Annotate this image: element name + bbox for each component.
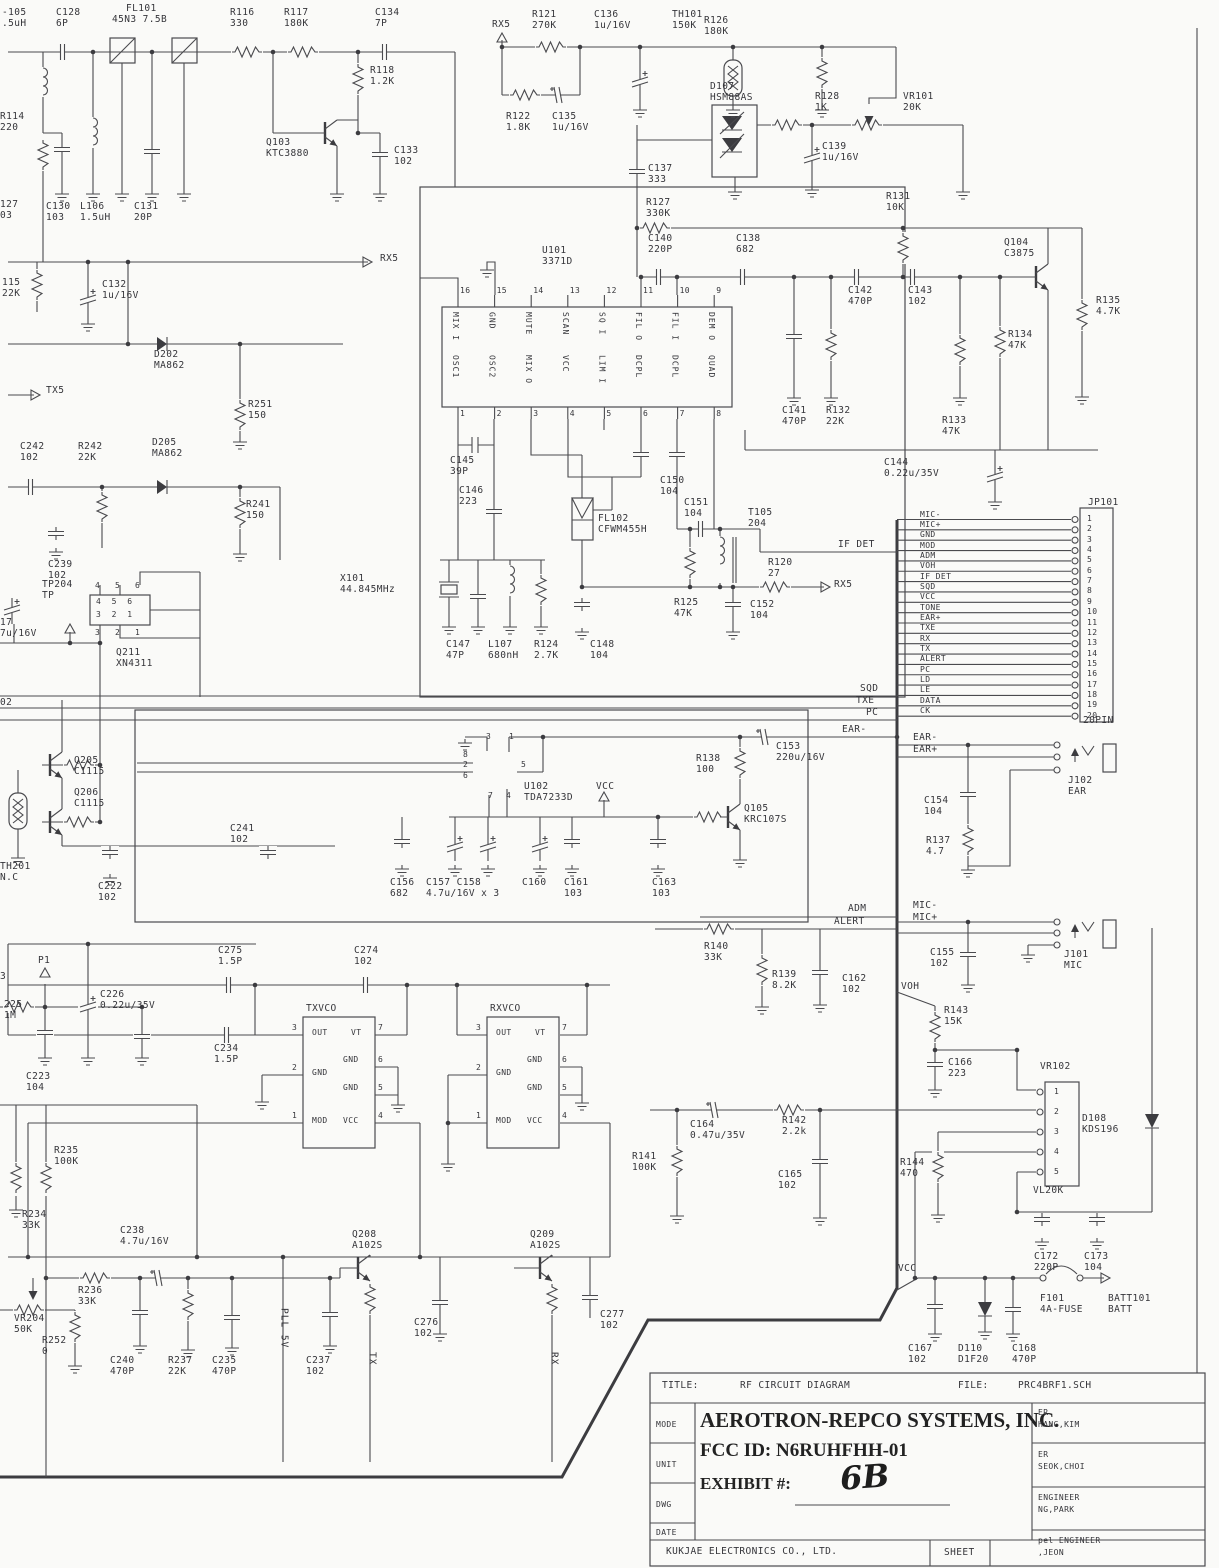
rxvco-pin-number: 3 [476,1023,481,1032]
115-label: 115 22K [2,278,20,299]
u101-pin-number: 3 [533,409,538,418]
alert-label: ALERT [834,917,865,928]
pc-label: PC [866,708,878,719]
u101-pin-mute: MUTE [524,312,533,335]
c154-label: C154 104 [924,796,948,817]
3-label: 3 [95,628,100,637]
exhibit-number: 6B [839,1456,891,1497]
02-label: 02 [0,698,12,709]
txvco-pin-number: 6 [378,1055,383,1064]
c276-label: C276 102 [414,1318,438,1339]
jp101-pin-number: 3 [1087,535,1092,544]
jp101-signal-ck: CK [920,706,930,715]
title-label: TITLE: [662,1381,699,1392]
txvco-pin-number: 2 [292,1063,297,1072]
r241-label: R241 150 [246,500,270,521]
c150-label: C150 104 [660,476,684,497]
c145-label: C145 39P [450,456,474,477]
c156-label: C156 682 [390,878,414,899]
rxvco-pin-number: 2 [476,1063,481,1072]
vr102-pin-number: 5 [1054,1167,1059,1176]
signoff-role-4: pel ENGINEER [1038,1536,1101,1545]
c128-label: C128 6P [56,8,80,29]
c162-label: C162 102 [842,974,866,995]
c142-label: C142 470P [848,286,872,307]
connector-pin-circle [1072,589,1078,595]
q103-label: Q103 KTC3880 [266,138,309,159]
r141-label: R141 100K [632,1152,656,1173]
title-block-frame [650,1373,1205,1566]
c167-label: C167 102 [908,1344,932,1365]
rxvco-pin-vcc: VCC [527,1116,543,1125]
c161-label: C161 103 [564,878,588,899]
r143-label: R143 15K [944,1006,968,1027]
connector-pin-circle [1072,672,1078,678]
u101-pin-number: 13 [570,286,580,295]
if-det-label: IF DET [838,540,875,551]
u101-pin-quad: QUAD [707,355,716,378]
txvco-pin-mod: MOD [312,1116,328,1125]
jp101-ref: JP101 [1088,498,1119,509]
u101-pin-osc1: OSC1 [451,355,460,378]
u101-pin-number: 11 [643,286,653,295]
connector-pin-circle [1072,651,1078,657]
u101-pin-fil-o: FIL O [634,312,643,341]
u101-pin-number: 16 [460,286,470,295]
u101-pin-sq-i: SQ I [597,312,606,335]
connector-pin-circle [1072,713,1078,719]
c166-label: C166 223 [948,1058,972,1079]
u101-pin-dcpl: DCPL [671,355,680,378]
u101-pin-number: 12 [606,286,616,295]
u101-pin-number: 9 [716,286,721,295]
c274-label: C274 102 [354,946,378,967]
c234-label: C234 1.5P [214,1044,238,1065]
jp101-signal-voh: VOH [920,561,936,570]
th101-label: TH101 150K [672,10,703,31]
jp101-signal-txe: TXE [920,623,936,632]
ear+-label: EAR+ [913,745,937,756]
c173-label: C173 104 [1084,1252,1108,1273]
r116-label: R116 330 [230,8,254,29]
fl102-label: FL102 CFWM455H [598,514,647,535]
jp101-signal-adm: ADM [920,551,936,560]
sqd-label: SQD [860,684,878,695]
c144-label: C144 0.22u/35V [884,458,939,479]
jp101-signal-mod: MOD [920,541,936,550]
r117-label: R117 180K [284,8,308,29]
connector-pin-circle [1037,1169,1043,1175]
rxvco-pin-mod: MOD [496,1116,512,1125]
rxvco-pin-number: 5 [562,1083,567,1092]
txvco-pin-gnd: GND [343,1083,359,1092]
c275-label: C275 1.5P [218,946,242,967]
txvco-pin-vcc: VCC [343,1116,359,1125]
c160-label: C160 [522,878,546,889]
vr102-pin-number: 3 [1054,1127,1059,1136]
c164-label: C164 0.47u/35V [690,1120,745,1141]
u101-pin-number: 5 [606,409,611,418]
voh-label: VOH [901,982,919,993]
d205-label: D205 MA862 [152,438,183,459]
jp101-pin-number: 19 [1087,700,1097,709]
d202-label: D202 MA862 [154,350,185,371]
u101-label: U101 3371D [542,246,573,267]
jp101-pin-number: 15 [1087,659,1097,668]
rx5-label: RX5 [834,580,852,591]
adm-label: ADM [848,904,866,915]
17-label: 17 7u/16V [0,618,37,639]
jp101-signal-tx: TX [920,644,930,653]
txvco-pin-out: OUT [312,1028,328,1037]
c143-label: C143 102 [908,286,932,307]
txvco-pin-number: 3 [292,1023,297,1032]
footer-company: KUKJAE ELECTRONICS CO., LTD. [666,1547,837,1558]
rxvco-pin-number: 4 [562,1111,567,1120]
connector-pin-circle [1072,579,1078,585]
r120-label: R120 27 [768,558,792,579]
l106-label: L106 1.5uH [80,202,111,223]
j102-label: J102 EAR [1068,776,1092,797]
connector-pin-circle [1072,527,1078,533]
7-label: 7 [488,791,493,800]
jp101-pin-number: 2 [1087,524,1092,533]
jp101-pin-number: 14 [1087,649,1097,658]
jp101-pin-number: 17 [1087,680,1097,689]
rx5-label: RX5 [380,254,398,265]
company-name: AEROTRON-REPCO SYSTEMS, INC. [700,1408,1059,1433]
sheet-label: SHEET [944,1548,975,1559]
vr102-pin-number: 1 [1054,1087,1059,1096]
r252-label: R252 0 [42,1336,66,1357]
jp101-signal-ld: LD [920,675,930,684]
signoff-name-1: HANG,KIM [1038,1420,1080,1429]
c172-label: C172 220P [1034,1252,1058,1273]
c134-label: C134 7P [375,8,399,29]
r118-label: R118 1.2K [370,66,394,87]
r139-label: R139 8.2K [772,970,796,991]
jp101-pin-number: 9 [1087,597,1092,606]
c223-label: C223 104 [26,1072,50,1093]
4-5-6-label: 4 5 6 [96,597,133,606]
jp101-pin-number: 12 [1087,628,1097,637]
c146-label: C146 223 [459,486,483,507]
u101-pin-number: 4 [570,409,575,418]
drawing-title: RF CIRCUIT DIAGRAM [740,1381,850,1392]
u101-pin-mix-i: MIX I [451,312,460,341]
vr102-pin-number: 4 [1054,1147,1059,1156]
connector-pin-circle [1037,1149,1043,1155]
c168-label: C168 470P [1012,1344,1036,1365]
row-label-dwg: DWG [656,1500,672,1509]
vr101-label: VR101 20K [903,92,934,113]
c139-label: C139 1u/16V [822,142,859,163]
t105-label: T105 204 [748,508,772,529]
j101-label: J101 MIC [1064,950,1088,971]
r133-label: R133 47K [942,416,966,437]
tp204-label: TP204 TP [42,580,73,601]
r235-label: R235 100K [54,1146,78,1167]
r138-label: R138 100 [696,754,720,775]
45n3-7-5b-label: 45N3 7.5B [112,15,167,26]
row-label-date: DATE [656,1528,677,1537]
c242-label: C242 102 [20,442,44,463]
u101-pin-number: 6 [643,409,648,418]
3-2-1-label: 3 2 1 [96,610,133,619]
r242-label: R242 22K [78,442,102,463]
rx-label: RX [548,1352,559,1365]
105-label: -105 .5uH [2,8,26,29]
r121-label: R121 270K [532,10,556,31]
u102-label: U102 TDA7233D [524,782,573,803]
r125-label: R125 47K [674,598,698,619]
u101-pin-number: 10 [680,286,690,295]
5-label: 5 [115,581,120,590]
u101-pin-gnd: GND [488,312,497,329]
c165-label: C165 102 [778,1170,802,1191]
r234-label: R234 33K [22,1210,46,1231]
c141-label: C141 470P [782,406,806,427]
txe-label: TXE [856,696,874,707]
jp101-signal-mic: MIC- [920,510,941,519]
c239-label: C239 102 [48,560,72,581]
c140-label: C140 220P [648,234,672,255]
vr102-pin-number: 2 [1054,1107,1059,1116]
r134-label: R134 47K [1008,330,1032,351]
connector-pin-circle [1072,558,1078,564]
jp101-signal-data: DATA [920,696,941,705]
txvco-pin-number: 1 [292,1111,297,1120]
r144-label: R144 470 [900,1158,924,1179]
jp101-pin-number: 10 [1087,607,1097,616]
signoff-role-1: ER [1038,1408,1048,1417]
u101-pin-dem-o: DEM O [707,312,716,341]
file-label: FILE: [958,1381,989,1392]
c152-label: C152 104 [750,600,774,621]
connector-pin-circle [1072,682,1078,688]
c235-label: C235 470P [212,1356,236,1377]
jp101-pin-number: 16 [1087,669,1097,678]
c155-label: C155 102 [930,948,954,969]
u101-pin-number: 14 [533,286,543,295]
connector-pin-circle [1037,1089,1043,1095]
jp101-pin-number: 6 [1087,566,1092,575]
signoff-role-2: ER [1038,1450,1048,1459]
f101-label: F101 4A-FUSE [1040,1294,1083,1315]
c130-label: C130 103 [46,202,70,223]
connector-pin-circle [1072,630,1078,636]
pll-5v-label: PLL 5V [278,1308,289,1348]
c238-label: C238 4.7u/16V [120,1226,169,1247]
jp101-signal-if-det: IF DET [920,572,951,581]
c240-label: C240 470P [110,1356,134,1377]
c135-label: C135 1u/16V [552,112,589,133]
vcc-label: VCC [596,782,614,793]
connector-pin-circle [1072,703,1078,709]
r251-label: R251 150 [248,400,272,421]
jp101-pin-number: 13 [1087,638,1097,647]
r137-label: R137 4.7 [926,836,950,857]
x101-label: X101 44.845MHz [340,574,395,595]
file-name: PRC4BRF1.SCH [1018,1381,1091,1392]
p1-label: P1 [38,956,50,967]
u101-pin-number: 8 [716,409,721,418]
rx5-label: RX5 [492,20,510,31]
jp101-signal-vcc: VCC [920,592,936,601]
signoff-name-3: NG,PARK [1038,1505,1075,1514]
r131-label: R131 10K [886,192,910,213]
ear-label: EAR- [913,733,937,744]
rxvco-pin-gnd: GND [496,1068,512,1077]
jp101-signal-pc: PC [920,665,930,674]
connector-pin-circle [1072,610,1078,616]
vr204-label: VR204 50K [14,1314,45,1335]
jp101-signal-gnd: GND [920,530,936,539]
jp101-signal-rx: RX [920,634,930,643]
3-label: 3 [486,732,491,741]
1-label: 1 [509,732,514,741]
row-label-mode: MODE [656,1420,677,1429]
r236-label: R236 33K [78,1286,102,1307]
txvco-pin-number: 5 [378,1083,383,1092]
u101-pin-mix-o: MIX O [524,355,533,384]
r142-label: R142 2.2k [782,1116,806,1137]
jp101-pin-number: 20 [1087,711,1097,720]
c131-label: C131 20P [134,202,158,223]
r127-label: R127 330K [646,198,670,219]
u101-pin-osc2: OSC2 [488,355,497,378]
6-label: 6 [463,771,468,780]
q211-label: Q211 XN4311 [116,648,153,669]
vl20k-label: VL20K [1033,1186,1064,1197]
rxvco-pin-gnd: GND [527,1055,543,1064]
connector-pin-circle [1072,599,1078,605]
2-label: 2 [463,760,468,769]
c237-label: C237 102 [306,1356,330,1377]
connector-pin-circle [1072,692,1078,698]
jp101-pin-number: 5 [1087,555,1092,564]
225-label: 225 1M [4,1000,22,1021]
q105-label: Q105 KRC107S [744,804,787,825]
8-label: 8 [463,750,468,759]
1-label: 1 [135,628,140,637]
6-label: 6 [135,581,140,590]
u101-pin-number: 2 [497,409,502,418]
txvco-label: TXVCO [306,1004,337,1015]
c163-label: C163 103 [652,878,676,899]
jp101-signal-mic+: MIC+ [920,520,941,529]
u101-pin-number: 7 [680,409,685,418]
jp101-pin-number: 7 [1087,576,1092,585]
u101-pin-number: 1 [460,409,465,418]
signoff-role-3: ENGINEER [1038,1493,1080,1502]
u101-pin-dcpl: DCPL [634,355,643,378]
vcc-label: VCC [898,1264,916,1275]
rxvco-label: RXVCO [490,1004,521,1015]
rxvco-pin-number: 1 [476,1111,481,1120]
connector-pin-circle [1072,537,1078,543]
u101-pin-scan: SCAN [561,312,570,335]
rxvco-pin-out: OUT [496,1028,512,1037]
r128-label: R128 1K [815,92,839,113]
tx-label: TX [366,1352,377,1365]
u101-pin-fil-i: FIL I [671,312,680,341]
c138-label: C138 682 [736,234,760,255]
txvco-pin-number: 7 [378,1023,383,1032]
r135-label: R135 4.7K [1096,296,1120,317]
q206-label: Q206 C1115 [74,788,105,809]
row-label-unit: UNIT [656,1460,677,1469]
r114-label: R114 220 [0,112,24,133]
127-label: 127 03 [0,200,18,221]
4-label: 4 [506,791,511,800]
txvco-pin-gnd: GND [343,1055,359,1064]
5-label: 5 [521,760,526,769]
txvco-pin-number: 4 [378,1111,383,1120]
fl101-label: FL101 [126,4,157,15]
u101-pin-number: 15 [497,286,507,295]
tx5-label: TX5 [46,386,64,397]
connector-pin-circle [1037,1129,1043,1135]
vr102-label: VR102 [1040,1062,1071,1073]
connector-pin-circle [1037,1109,1043,1115]
connector-pin-circle [1072,620,1078,626]
ear-label: EAR- [842,725,866,736]
jp101-pin-number: 11 [1087,618,1097,627]
q208-label: Q208 A102S [352,1230,383,1251]
mic+-label: MIC+ [913,913,937,924]
d107-label: D107 HSM88AS [710,82,753,103]
d110-label: D110 D1F20 [958,1344,989,1365]
rxvco-pin-gnd: GND [527,1083,543,1092]
r126-label: R126 180K [704,16,728,37]
u101-pin-vcc: VCC [561,355,570,372]
c226-label: C226 0.22u/35V [100,990,155,1011]
d108-label: D108 KDS196 [1082,1114,1119,1135]
signoff-name-4: ,JEON [1038,1548,1064,1557]
c157-c158-label: C157 C158 4.7u/16V x 3 [426,878,499,899]
jp101-pin-number: 8 [1087,586,1092,595]
jp101-pin-number: 18 [1087,690,1097,699]
batt101-label: BATT101 BATT [1108,1294,1151,1315]
jp101-signal-alert: ALERT [920,654,946,663]
rxvco-pin-number: 6 [562,1055,567,1064]
connector-pin-circle [1072,641,1078,647]
c241-label: C241 102 [230,824,254,845]
jp101-signal-tone: TONE [920,603,941,612]
q209-label: Q209 A102S [530,1230,561,1251]
2-label: 2 [115,628,120,637]
rxvco-pin-vt: VT [535,1028,545,1037]
c153-label: C153 220u/16V [776,742,825,763]
q205-label: Q205 C1115 [74,756,105,777]
r237-label: R237 22K [168,1356,192,1377]
c132-label: C132 1u/16V [102,280,139,301]
c133-label: C133 102 [394,146,418,167]
schematic-page: TITLE: RF CIRCUIT DIAGRAM FILE: PRC4BRF1… [0,0,1219,1568]
jp101-signal-ear+: EAR+ [920,613,941,622]
l107-label: L107 680nH [488,640,519,661]
jp101-pin-number: 1 [1087,514,1092,523]
3-label: 3 [0,972,6,983]
c277-label: C277 102 [600,1310,624,1331]
r124-label: R124 2.7K [534,640,558,661]
signoff-name-2: SEOK,CHOI [1038,1462,1085,1471]
rxvco-pin-number: 7 [562,1023,567,1032]
mic-label: MIC- [913,901,937,912]
jp101-signal-sqd: SQD [920,582,936,591]
c151-label: C151 104 [684,498,708,519]
